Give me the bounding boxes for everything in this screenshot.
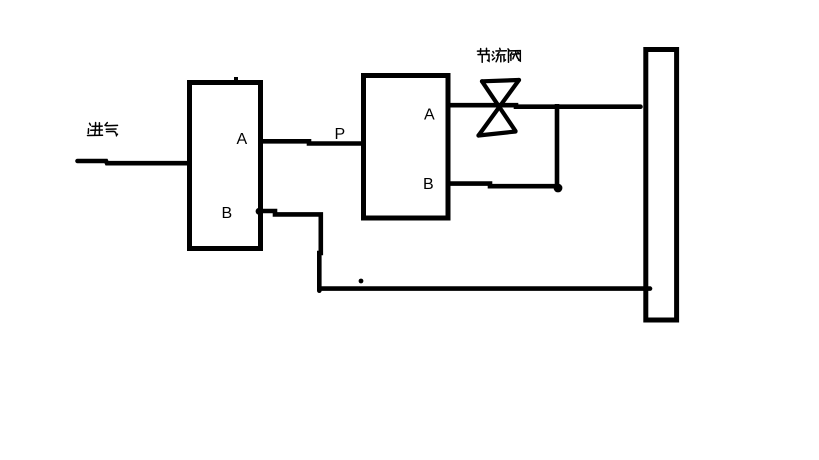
svg-text:A: A bbox=[237, 131, 248, 148]
svg-text:P: P bbox=[335, 126, 346, 143]
svg-text:A: A bbox=[424, 107, 435, 124]
svg-text:B: B bbox=[423, 176, 434, 193]
svg-text:B: B bbox=[222, 205, 233, 222]
